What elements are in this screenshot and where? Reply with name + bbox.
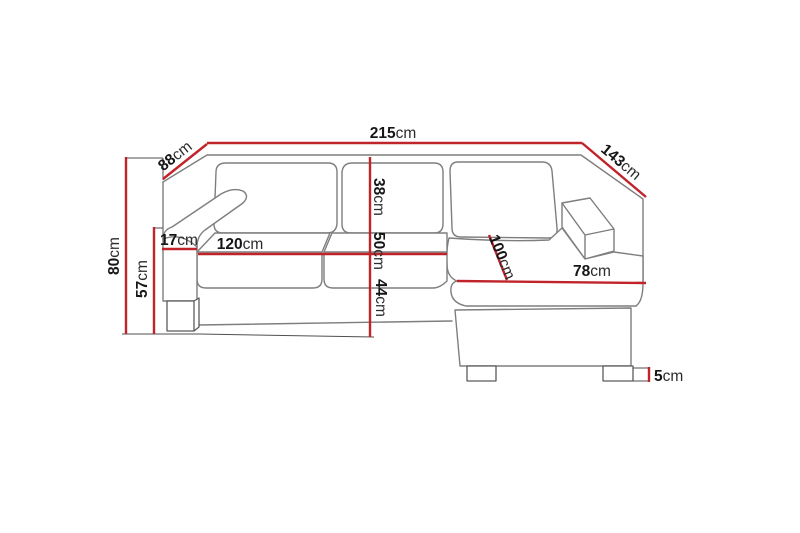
dim-label-backrest-cushion-height: 38cm [371,178,388,216]
dim-label-seat-depth: 50cm [371,232,388,270]
dim-label-armrest-height: 57cm [134,260,151,298]
dim-label-leg-height: 5cm [654,368,683,385]
dim-label-seat-height: 44cm [373,279,390,317]
front-left-leg [167,298,199,331]
dim-label-armrest-width: 17cm [160,232,198,249]
chaise-right-leg [603,366,633,381]
diagram-canvas: 215cm 88cm 143cm 80cm 57cm 17cm 120cm 38… [0,0,800,533]
chaise-left-leg [467,366,496,381]
chaise-base [455,308,631,366]
dim-label-total-height: 80cm [106,237,123,275]
sofa-dimension-diagram: 215cm 88cm 143cm 80cm 57cm 17cm 120cm 38… [0,0,800,533]
dim-label-total-width: 215cm [370,125,417,142]
dim-label-chaise-width: 78cm [573,263,611,280]
back-cushion-2 [342,163,443,233]
back-cushion-3 [450,162,557,238]
dim-label-seat-width: 120cm [217,236,264,253]
